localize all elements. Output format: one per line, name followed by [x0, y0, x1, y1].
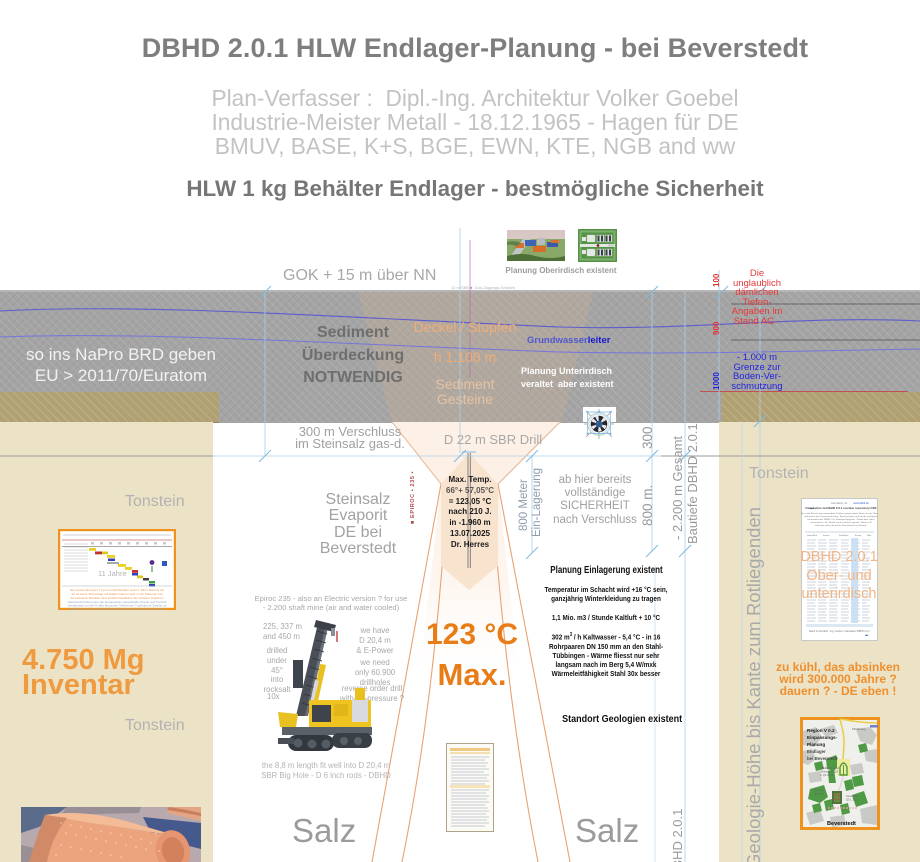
svg-text:Name/Wert: Name/Wert: [807, 534, 818, 537]
svg-text:Zahl/Value: Zahl/Value: [839, 535, 849, 537]
svg-text:QS L 122: QS L 122: [846, 798, 857, 802]
svg-text:Einpassungs-: Einpassungs-: [807, 735, 838, 740]
svg-text:Calculation 1a DBHD 2.0.1 nucl: Calculation 1a DBHD 2.0.1 nuclear reposi…: [805, 506, 877, 510]
svg-text:11 Jahre: 11 Jahre: [98, 569, 127, 578]
svg-text:Beverstedt: Beverstedt: [827, 821, 856, 827]
svg-text:Kennzahlen des DBHD 2.0.1 Endl: Kennzahlen des DBHD 2.0.1 Endlager Bergw…: [808, 518, 875, 521]
svg-text:eine Branche die so falsch auf: eine Branche die so falsch aufgestellt i…: [69, 607, 166, 610]
svg-text:Seitenale in QS: Seitenale in QS: [820, 770, 838, 774]
svg-text:Planung: Planung: [807, 742, 825, 747]
svg-text:Endlager: Endlager: [814, 788, 825, 792]
svg-text:bei Beverstedt: bei Beverstedt: [807, 756, 838, 761]
svg-text:gebäude: gebäude: [814, 792, 825, 796]
svg-text:Formel: Formel: [823, 535, 830, 537]
svg-text:nachrechnen - die Tabelle wurd: nachrechnen - die Tabelle wurde mehrfach…: [810, 521, 872, 524]
svg-text:Region V 0.2: Region V 0.2: [807, 728, 835, 733]
svg-text:DBHD von Hafen: DBHD von Hafen: [820, 766, 840, 770]
svg-text:Calculation 1a: Calculation 1a: [831, 501, 848, 505]
svg-text:Einheit: Einheit: [855, 534, 862, 537]
svg-text:✒: ✒: [865, 633, 869, 638]
svg-text:DB Alteweg: DB Alteweg: [852, 727, 866, 731]
svg-text:Einheiten und in deutscher Sch: Einheiten und in deutscher Schreibweise …: [815, 524, 867, 527]
svg-text:Die in der Berechnung verwende: Die in der Berechnung verwendeten Zahlen…: [801, 512, 878, 515]
svg-text:in QS Werk: in QS Werk: [820, 773, 834, 777]
svg-text:www.dbhd.de: www.dbhd.de: [853, 501, 869, 505]
svg-text:Stand 12.04.2022 - Ing. Goebel: Stand 12.04.2022 - Ing. Goebel - Calcula…: [809, 630, 870, 633]
svg-text:und dienen der Veranschaulichu: und dienen der Veranschaulichung - Berec…: [804, 515, 878, 518]
svg-text:Endlager: Endlager: [807, 749, 826, 754]
svg-text:Strasse zu: Strasse zu: [846, 794, 859, 798]
